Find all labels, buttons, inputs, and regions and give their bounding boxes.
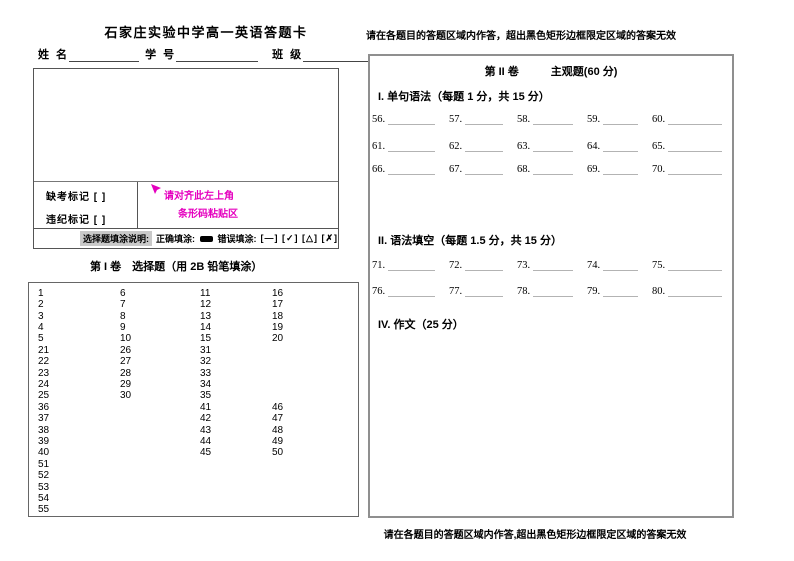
question-number: 51 (38, 459, 120, 470)
answer-blank (388, 162, 435, 175)
question-number: 5 (38, 333, 120, 344)
question-number: 61. (372, 141, 388, 152)
marks-and-barcode-row: 缺考标记 [ ] 违纪标记 [ ] 请对齐此左上角 条形码粘贴区 (34, 182, 338, 229)
answer-column: 3132333435 (200, 345, 272, 401)
answer-slot: 70. (652, 162, 728, 175)
answer-blank (533, 284, 573, 297)
student-id-field-label: 学 号 (145, 46, 176, 62)
answer-slot: 62. (449, 139, 517, 152)
question-number: 30 (120, 390, 200, 401)
question-number: 57. (449, 114, 465, 125)
answer-slot: 69. (587, 162, 652, 175)
question-number: 1 (38, 288, 120, 299)
answer-block: 212223242526272829303132333435 (38, 345, 354, 401)
question-number: 80. (652, 286, 668, 297)
answer-slot: 68. (517, 162, 587, 175)
answer-slot: 79. (587, 284, 652, 297)
blank-info-area (34, 69, 338, 182)
question-number: 20 (272, 333, 354, 344)
answer-blank (388, 139, 435, 152)
answer-column (272, 345, 354, 401)
answer-column: 4647484950 (272, 402, 354, 458)
answer-blank (603, 284, 638, 297)
question-number: 50 (272, 447, 354, 458)
wrong-fill-label: 错误填涂: (218, 232, 257, 245)
question-number: 68. (517, 164, 533, 175)
answer-slot: 77. (449, 284, 517, 297)
answer-column: 1617181920 (272, 288, 354, 344)
question-number: 13 (200, 311, 272, 322)
page-title: 石家庄实验中学高一英语答题卡 (41, 22, 371, 41)
answer-column: 1112131415 (200, 288, 272, 344)
answer-column: 3637383940 (38, 402, 120, 458)
answer-slot: 56. (372, 112, 449, 125)
question-number: 17 (272, 299, 354, 310)
answer-row: 76.77.78.79.80. (372, 284, 728, 297)
question-number: 16 (272, 288, 354, 299)
answer-block: 1234567891011121314151617181920 (38, 288, 354, 344)
answer-column (272, 459, 354, 515)
answer-slot: 73. (517, 258, 587, 271)
question-number: 65. (652, 141, 668, 152)
question-number: 33 (200, 368, 272, 379)
answer-slot: 58. (517, 112, 587, 125)
answer-blank (603, 112, 638, 125)
question-number: 55 (38, 504, 120, 515)
answer-slot: 76. (372, 284, 449, 297)
answer-slot: 75. (652, 258, 728, 271)
answer-column: 4142434445 (200, 402, 272, 458)
question-number: 11 (200, 288, 272, 299)
align-corner-arrow-icon (151, 184, 162, 195)
answer-sheet: 石家庄实验中学高一英语答题卡 姓 名 学 号 班 级 缺考标记 [ ] 违纪标记… (0, 0, 794, 561)
name-field-label: 姓 名 (38, 46, 69, 62)
class-field-blank (303, 50, 369, 62)
answer-row: 56.57.58.59.60. (372, 112, 728, 125)
answer-column (120, 459, 200, 515)
answer-column: 5152535455 (38, 459, 120, 515)
answer-slot: 57. (449, 112, 517, 125)
section-grammar-heading: I. 单句语法（每题 1 分，共 15 分） (378, 88, 550, 104)
question-number: 70. (652, 164, 668, 175)
answer-blank (465, 139, 503, 152)
question-number: 6 (120, 288, 200, 299)
answer-blank (668, 112, 722, 125)
question-number: 7 (120, 299, 200, 310)
question-number: 47 (272, 413, 354, 424)
violation-mark-label: 违纪标记 [ ] (46, 211, 137, 226)
section1-title: 第 I 卷 选择题（用 2B 铅笔填涂） (90, 258, 262, 274)
student-id-field-blank (176, 50, 258, 62)
answer-row: 71.72.73.74.75. (372, 258, 728, 271)
section-writing-heading: IV. 作文（25 分） (378, 316, 464, 332)
question-number: 64. (587, 141, 603, 152)
answer-blank (603, 258, 638, 271)
question-number: 41 (200, 402, 272, 413)
answer-blank (603, 139, 638, 152)
answer-blank (533, 139, 573, 152)
answer-column: 2122232425 (38, 345, 120, 401)
question-number: 77. (449, 286, 465, 297)
question-number: 22 (38, 356, 120, 367)
question-number: 28 (120, 368, 200, 379)
answer-block: 5152535455 (38, 459, 354, 515)
name-field-blank (69, 50, 139, 62)
question-number: 2 (38, 299, 120, 310)
question-number: 19 (272, 322, 354, 333)
answer-slot: 72. (449, 258, 517, 271)
answer-blank (465, 112, 503, 125)
question-number: 56. (372, 114, 388, 125)
question-number: 67. (449, 164, 465, 175)
question-number: 3 (38, 311, 120, 322)
question-number: 23 (38, 368, 120, 379)
question-number: 9 (120, 322, 200, 333)
question-number: 4 (38, 322, 120, 333)
question-number: 27 (120, 356, 200, 367)
question-number: 12 (200, 299, 272, 310)
fill-instruction-row: 选择题填涂说明: 正确填涂: 错误填涂: [—] [✓] [△] [✗] (34, 229, 338, 248)
answer-slot: 74. (587, 258, 652, 271)
question-number: 73. (517, 260, 533, 271)
wrong-fill-samples: [—] [✓] [△] [✗] (261, 233, 338, 244)
question-number: 21 (38, 345, 120, 356)
question-number: 24 (38, 379, 120, 390)
fill-instruction-label: 选择题填涂说明: (80, 231, 152, 246)
answer-column: 12345 (38, 288, 120, 344)
answer-row: 61.62.63.64.65. (372, 139, 728, 152)
answer-row: 66.67.68.69.70. (372, 162, 728, 175)
exam-marks-panel: 缺考标记 [ ] 违纪标记 [ ] (34, 182, 138, 228)
answer-blank (533, 258, 573, 271)
subjective-answer-box: 第 II 卷 主观题(60 分) I. 单句语法（每题 1 分，共 15 分） … (368, 54, 734, 518)
answer-slot: 66. (372, 162, 449, 175)
question-number: 25 (38, 390, 120, 401)
correct-fill-label: 正确填涂: (156, 232, 195, 245)
answer-slot: 61. (372, 139, 449, 152)
answer-slot: 67. (449, 162, 517, 175)
answer-blank (388, 258, 435, 271)
answer-slot: 71. (372, 258, 449, 271)
question-number: 26 (120, 345, 200, 356)
question-number: 48 (272, 425, 354, 436)
volume-subtitle: 主观题(60 分) (551, 63, 618, 79)
class-field-label: 班 级 (272, 46, 303, 62)
question-number: 35 (200, 390, 272, 401)
question-number: 34 (200, 379, 272, 390)
answer-column (120, 402, 200, 458)
volume-title: 第 II 卷 (485, 63, 519, 79)
question-number: 46 (272, 402, 354, 413)
question-number: 45 (200, 447, 272, 458)
question-number: 78. (517, 286, 533, 297)
question-number: 53 (38, 482, 120, 493)
question-number: 38 (38, 425, 120, 436)
question-number: 40 (38, 447, 120, 458)
question-number: 52 (38, 470, 120, 481)
question-number: 14 (200, 322, 272, 333)
question-number: 44 (200, 436, 272, 447)
answer-blank (533, 112, 573, 125)
answer-blank (603, 162, 638, 175)
question-number: 58. (517, 114, 533, 125)
answer-slot: 63. (517, 139, 587, 152)
question-number: 62. (449, 141, 465, 152)
answer-blank (668, 284, 722, 297)
answer-block: 363738394041424344454647484950 (38, 402, 354, 458)
answer-slot: 65. (652, 139, 728, 152)
question-number: 54 (38, 493, 120, 504)
question-number: 31 (200, 345, 272, 356)
barcode-area: 请对齐此左上角 条形码粘贴区 (138, 182, 338, 228)
answer-blank (465, 258, 503, 271)
answer-slot: 80. (652, 284, 728, 297)
question-number: 18 (272, 311, 354, 322)
answer-blank (465, 284, 503, 297)
question-number: 66. (372, 164, 388, 175)
question-number: 69. (587, 164, 603, 175)
objective-answer-grid-box: 1234567891011121314151617181920212223242… (28, 282, 359, 517)
question-number: 29 (120, 379, 200, 390)
question-number: 63. (517, 141, 533, 152)
question-number: 72. (449, 260, 465, 271)
question-number: 43 (200, 425, 272, 436)
absent-mark-label: 缺考标记 [ ] (46, 188, 137, 203)
question-number: 32 (200, 356, 272, 367)
question-number: 74. (587, 260, 603, 271)
answer-blank (668, 162, 722, 175)
bottom-instruction: 请在各题目的答题区域内作答,超出黑色矩形边框限定区域的答案无效 (352, 526, 718, 541)
question-number: 59. (587, 114, 603, 125)
question-number: 71. (372, 260, 388, 271)
answer-column (200, 459, 272, 515)
question-number: 8 (120, 311, 200, 322)
student-info-row: 姓 名 学 号 班 级 (38, 46, 369, 62)
answer-slot: 60. (652, 112, 728, 125)
question-number: 60. (652, 114, 668, 125)
section-fill-heading: II. 语法填空（每题 1.5 分，共 15 分） (378, 232, 562, 248)
answer-blank (668, 139, 722, 152)
answer-blank (668, 258, 722, 271)
answer-blank (465, 162, 503, 175)
question-number: 79. (587, 286, 603, 297)
correct-fill-sample (200, 236, 213, 242)
header-info-box: 缺考标记 [ ] 违纪标记 [ ] 请对齐此左上角 条形码粘贴区 选择题填涂说明… (33, 68, 339, 249)
question-number: 36 (38, 402, 120, 413)
question-number: 15 (200, 333, 272, 344)
answer-slot: 78. (517, 284, 587, 297)
answer-slot: 64. (587, 139, 652, 152)
question-number: 75. (652, 260, 668, 271)
answer-blank (533, 162, 573, 175)
answer-blank (388, 112, 435, 125)
question-number: 10 (120, 333, 200, 344)
barcode-align-note: 请对齐此左上角 (164, 187, 338, 202)
question-number: 42 (200, 413, 272, 424)
question-number: 49 (272, 436, 354, 447)
question-number: 76. (372, 286, 388, 297)
question-number: 39 (38, 436, 120, 447)
answer-column: 2627282930 (120, 345, 200, 401)
volume-title-row: 第 II 卷 主观题(60 分) (370, 63, 732, 79)
answer-slot: 59. (587, 112, 652, 125)
question-number: 37 (38, 413, 120, 424)
answer-column: 678910 (120, 288, 200, 344)
top-instruction: 请在各题目的答题区域内作答，超出黑色矩形边框限定区域的答案无效 (338, 27, 704, 42)
barcode-paste-label: 条形码粘贴区 (178, 205, 338, 220)
answer-blank (388, 284, 435, 297)
